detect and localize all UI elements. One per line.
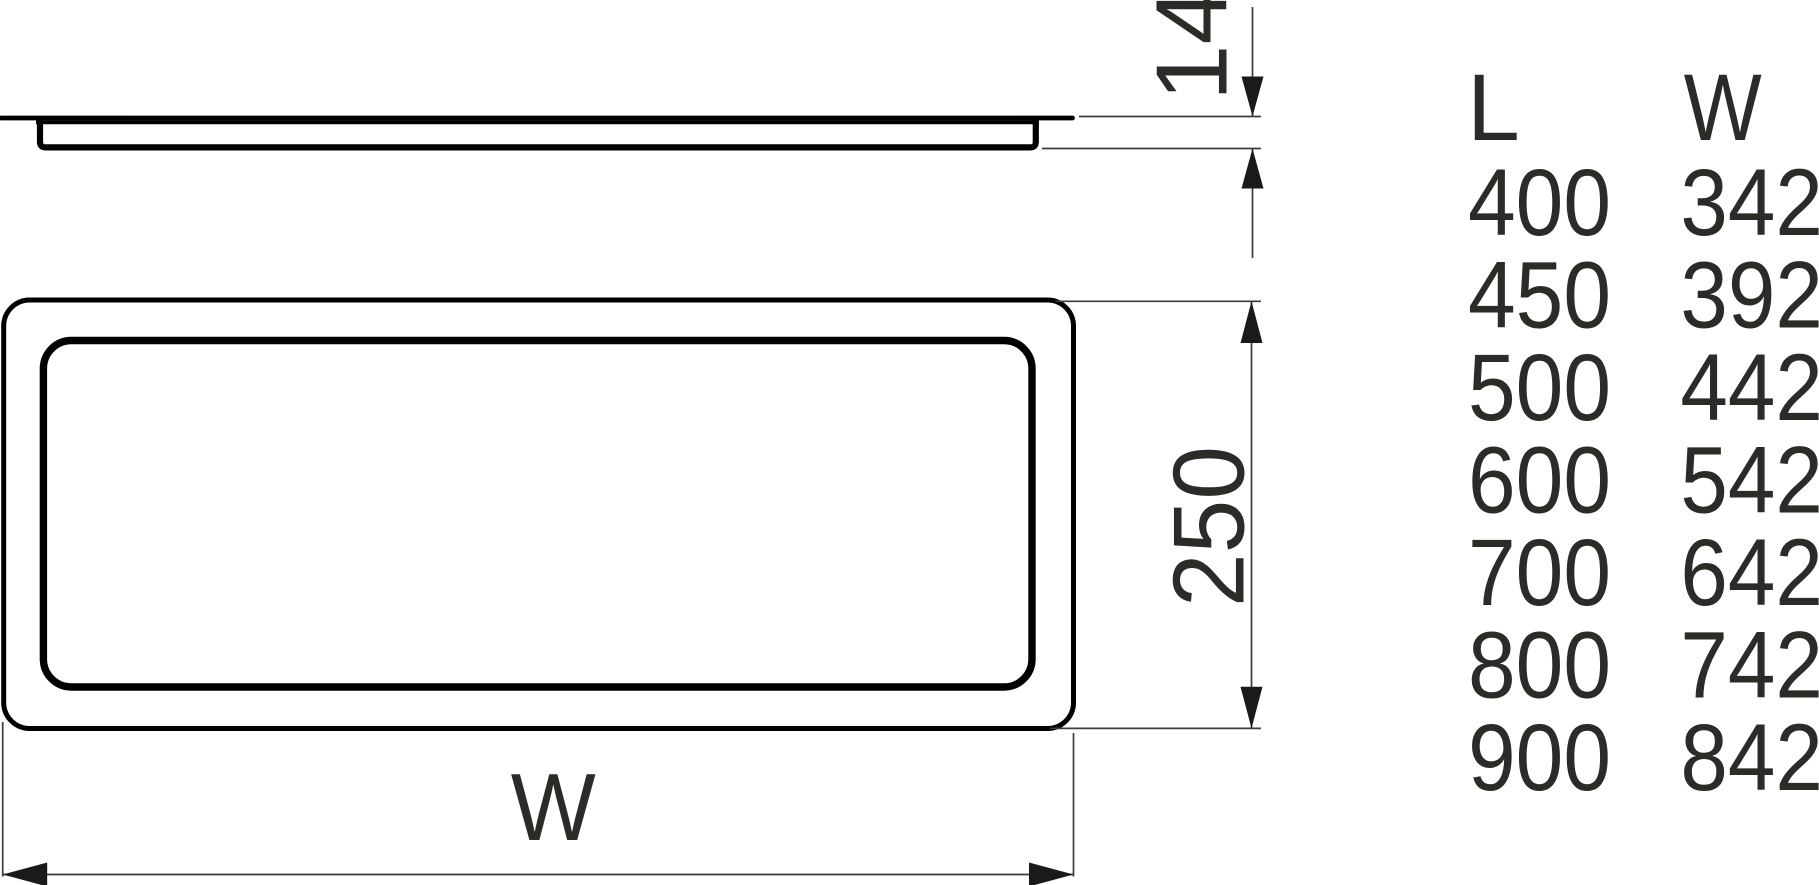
svg-text:600: 600 (1468, 428, 1611, 534)
svg-text:14: 14 (1135, 0, 1249, 101)
svg-text:400: 400 (1468, 150, 1611, 256)
svg-text:450: 450 (1468, 243, 1611, 349)
svg-text:742: 742 (1680, 613, 1819, 719)
svg-text:W: W (511, 754, 596, 861)
svg-text:842: 842 (1680, 705, 1819, 811)
svg-text:500: 500 (1468, 335, 1611, 441)
svg-text:W: W (1684, 55, 1762, 161)
svg-text:642: 642 (1680, 520, 1819, 626)
svg-text:800: 800 (1468, 613, 1611, 719)
svg-text:442: 442 (1680, 335, 1819, 441)
svg-text:L: L (1467, 55, 1520, 161)
svg-text:900: 900 (1468, 705, 1611, 811)
svg-text:250: 250 (1152, 446, 1266, 607)
svg-text:700: 700 (1468, 520, 1611, 626)
svg-text:342: 342 (1680, 150, 1819, 256)
svg-text:392: 392 (1680, 243, 1819, 349)
svg-text:542: 542 (1680, 428, 1819, 534)
